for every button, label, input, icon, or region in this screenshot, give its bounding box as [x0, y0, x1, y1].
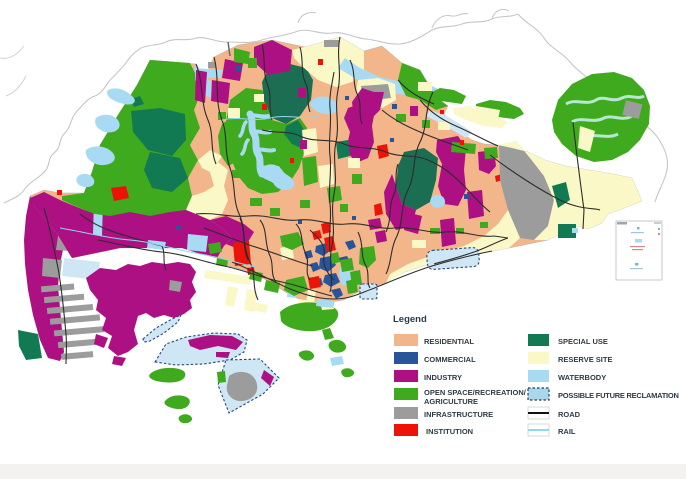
svg-text:SPECIAL USE: SPECIAL USE — [558, 337, 608, 346]
svg-text:ROAD: ROAD — [558, 410, 581, 419]
svg-text:INDUSTRY: INDUSTRY — [424, 373, 462, 382]
svg-text:WATERBODY: WATERBODY — [558, 373, 606, 382]
svg-text:COMMERCIAL: COMMERCIAL — [424, 355, 476, 364]
svg-text:POSSIBLE FUTURE RECLAMATION: POSSIBLE FUTURE RECLAMATION — [558, 391, 679, 400]
svg-text:INSTITUTION: INSTITUTION — [426, 427, 473, 436]
svg-text:RESERVE SITE: RESERVE SITE — [558, 355, 612, 364]
svg-text:INFRASTRUCTURE: INFRASTRUCTURE — [424, 410, 493, 419]
svg-text:AGRICULTURE: AGRICULTURE — [424, 397, 478, 406]
svg-text:RAIL: RAIL — [558, 427, 576, 436]
svg-text:Legend: Legend — [393, 314, 427, 325]
svg-text:RESIDENTIAL: RESIDENTIAL — [424, 337, 474, 346]
svg-text:OPEN SPACE/RECREATION/: OPEN SPACE/RECREATION/ — [424, 388, 527, 397]
